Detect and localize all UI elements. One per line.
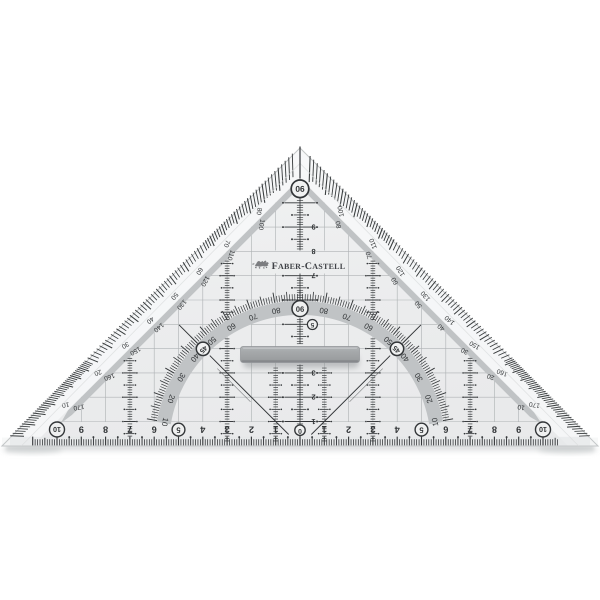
svg-text:10: 10 — [539, 425, 547, 434]
svg-text:1: 1 — [273, 424, 278, 434]
svg-text:8: 8 — [492, 424, 497, 434]
svg-text:6: 6 — [443, 424, 448, 434]
svg-text:2: 2 — [249, 424, 254, 434]
svg-text:1: 1 — [311, 417, 315, 426]
svg-text:8: 8 — [311, 247, 315, 256]
svg-text:10: 10 — [53, 425, 61, 434]
svg-text:3: 3 — [225, 424, 230, 434]
svg-text:7: 7 — [127, 424, 132, 434]
svg-text:FABER-CASTELL: FABER-CASTELL — [272, 261, 346, 272]
svg-text:9: 9 — [516, 424, 521, 434]
svg-text:9: 9 — [79, 424, 84, 434]
svg-text:90: 90 — [295, 184, 305, 194]
svg-text:4: 4 — [394, 424, 400, 434]
svg-text:4: 4 — [199, 424, 205, 434]
svg-text:5: 5 — [310, 321, 314, 328]
svg-text:6: 6 — [152, 424, 157, 434]
svg-text:1: 1 — [322, 424, 327, 434]
svg-text:7: 7 — [468, 424, 473, 434]
svg-text:8: 8 — [103, 424, 108, 434]
svg-text:0: 0 — [298, 427, 302, 434]
svg-text:90: 90 — [296, 304, 304, 313]
svg-text:2: 2 — [346, 424, 351, 434]
svg-text:7: 7 — [311, 271, 315, 280]
svg-text:3: 3 — [311, 368, 315, 377]
svg-text:2: 2 — [311, 393, 315, 402]
svg-text:9: 9 — [311, 223, 315, 232]
svg-text:3: 3 — [370, 424, 375, 434]
